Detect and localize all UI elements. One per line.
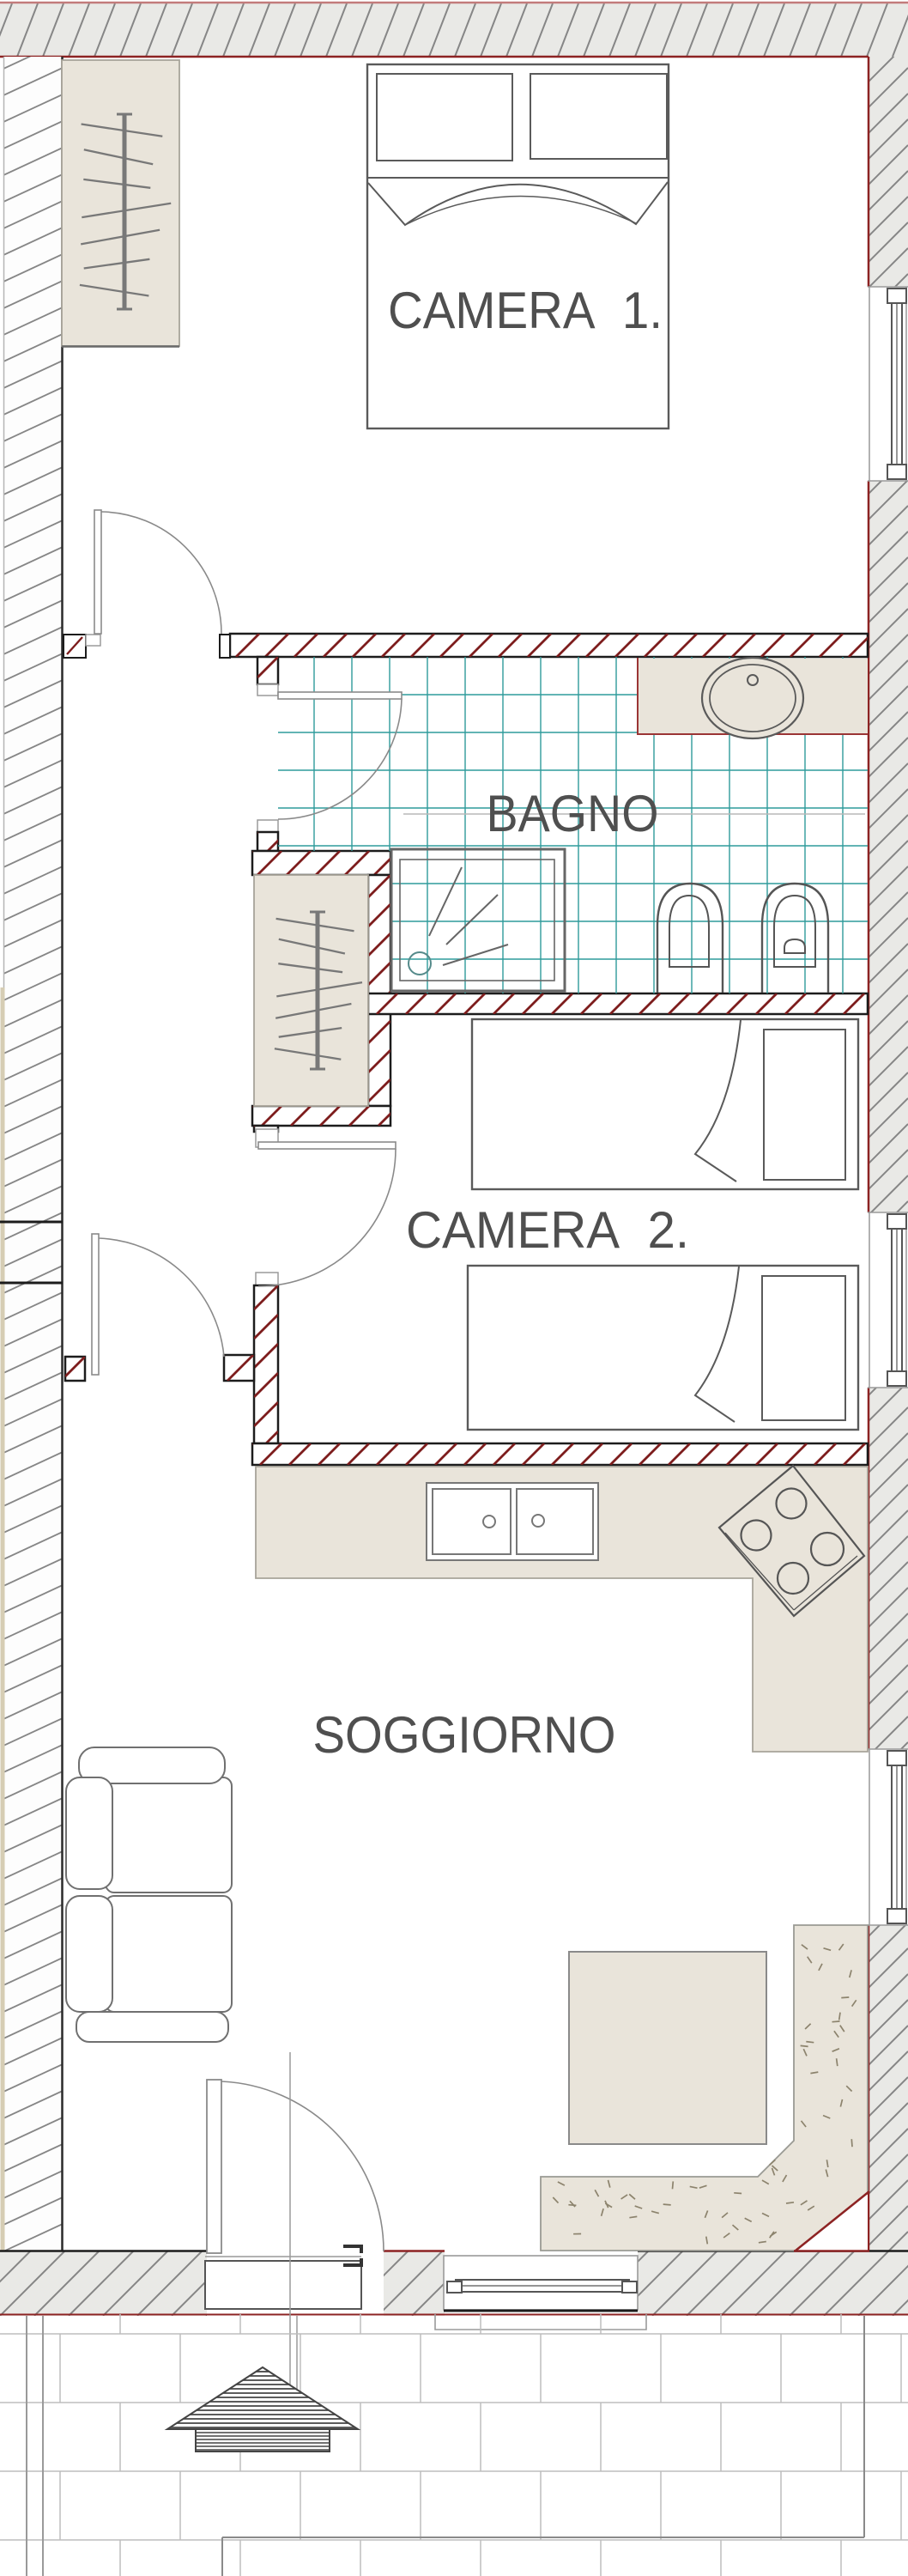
svg-text:SOGGIORNO: SOGGIORNO — [313, 1706, 616, 1764]
svg-text:CAMERA 1.: CAMERA 1. — [388, 282, 663, 339]
svg-text:BAGNO: BAGNO — [487, 785, 659, 842]
svg-text:CAMERA 2.: CAMERA 2. — [406, 1201, 689, 1259]
